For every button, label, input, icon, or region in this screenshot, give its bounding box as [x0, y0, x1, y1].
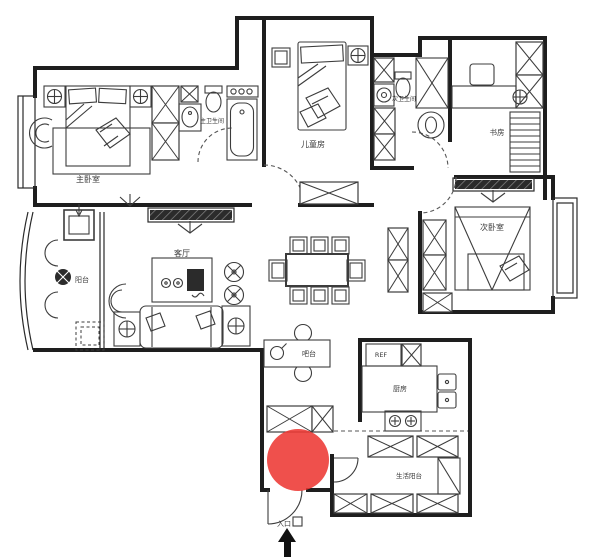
- dining-furniture: [269, 228, 408, 304]
- study-furniture: [452, 42, 543, 172]
- label-study: 书房: [490, 127, 505, 137]
- master-bedroom-furniture: [30, 86, 179, 174]
- label-fridge: REF: [375, 351, 388, 359]
- label-master-bedroom: 主卧室: [76, 174, 100, 184]
- service-balcony-door-arc: [334, 458, 358, 482]
- label-kids-room: 儿童房: [301, 139, 325, 149]
- dining-table: [286, 254, 348, 286]
- label-living-room: 客厅: [174, 248, 190, 258]
- sofa: [140, 306, 223, 348]
- tv-wall-hatch: [148, 208, 234, 233]
- label-service-balcony: 生活阳台: [396, 471, 422, 480]
- shelf: [227, 86, 258, 97]
- label-second-bedroom: 次卧室: [480, 222, 504, 232]
- second-bedroom-door-arc: [420, 177, 456, 213]
- label-master-bathroom: 主卫生间: [200, 117, 224, 125]
- bar-furniture: [264, 325, 330, 382]
- bed: [66, 86, 130, 166]
- entrance-arrow-icon: [278, 528, 296, 557]
- floor-plan: 主卧室 主卫生间 儿童房 次卫生间 书房 次卧室 客厅 阳台 吧台 REF 厨房…: [0, 0, 600, 559]
- entry-step: [293, 517, 302, 526]
- bed: [455, 207, 530, 290]
- second-bedroom-furniture: [423, 207, 530, 312]
- entry-door-arc: [268, 490, 302, 524]
- bar-stool: [295, 325, 312, 342]
- desk: [452, 86, 516, 108]
- balcony-chair: [45, 240, 58, 266]
- water-heater: [64, 204, 94, 240]
- armchair: [30, 118, 52, 148]
- rug: [53, 128, 150, 174]
- second-bath-door-arc: [412, 132, 448, 168]
- bay-window-right: [553, 198, 577, 298]
- living-room-furniture: [109, 258, 250, 348]
- ceiling-fan-icon: [225, 263, 244, 282]
- kids-room-door-arc: [264, 165, 304, 205]
- label-kitchen: 厨房: [393, 384, 407, 393]
- label-second-bathroom: 次卫生间: [392, 95, 416, 103]
- balcony-table: [55, 269, 71, 285]
- desk-chair: [470, 64, 494, 85]
- label-balcony: 阳台: [75, 275, 89, 284]
- ceiling-fan-icon: [225, 286, 244, 305]
- label-entrance: 入口: [277, 520, 291, 528]
- balcony-chair: [45, 292, 58, 318]
- vanity-sink: [418, 112, 444, 138]
- bed: [298, 42, 346, 130]
- accent-chair: [109, 284, 126, 318]
- second-bedroom-hatch: [453, 178, 534, 202]
- tv: [187, 269, 204, 291]
- stove: [385, 411, 421, 431]
- label-bar: 吧台: [302, 349, 316, 358]
- bar-counter: [264, 340, 330, 367]
- highlight-marker[interactable]: [267, 429, 329, 491]
- bookshelf: [510, 112, 540, 172]
